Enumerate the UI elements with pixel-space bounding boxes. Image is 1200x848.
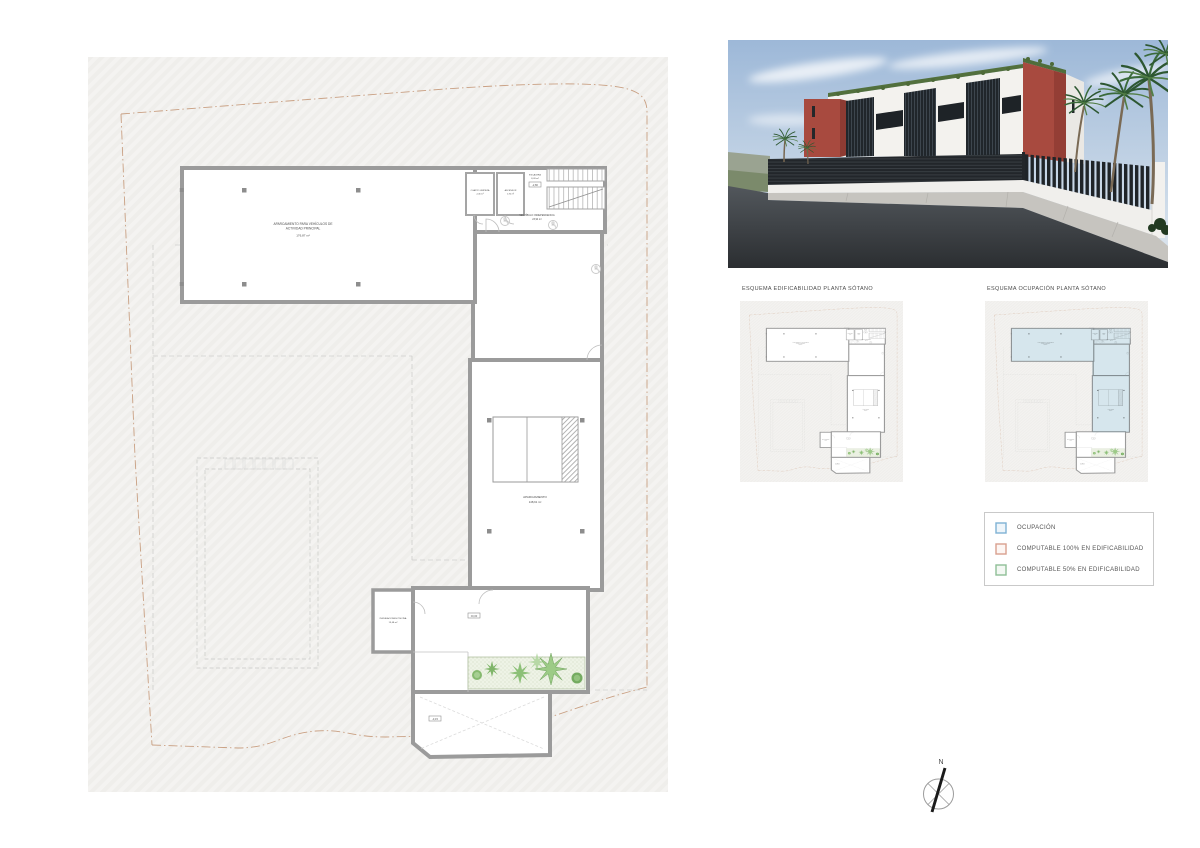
- legend-label: OCUPACIÓN: [1017, 525, 1056, 531]
- building-render-image: [728, 40, 1168, 268]
- north-label: N: [938, 759, 943, 766]
- legend-item-computable-100: COMPUTABLE 100% EN EDIFICABILIDAD: [995, 543, 1145, 555]
- legend-label: COMPUTABLE 50% EN EDIFICABILIDAD: [1017, 567, 1140, 573]
- legend-label: COMPUTABLE 100% EN EDIFICABILIDAD: [1017, 546, 1144, 552]
- schematic-ocupacion-plan: [985, 301, 1148, 482]
- legend-item-computable-50: COMPUTABLE 50% EN EDIFICABILIDAD: [995, 564, 1145, 576]
- legend-swatch-computable-100: [995, 543, 1007, 555]
- schematic-ocupacion-title: ESQUEMA OCUPACIÓN PLANTA SÓTANO: [987, 286, 1155, 292]
- legend-swatch-ocupacion: [995, 522, 1007, 534]
- schematic-edificabilidad-title: ESQUEMA EDIFICABILIDAD PLANTA SÓTANO: [742, 286, 910, 292]
- schematic-ocupacion: ESQUEMA OCUPACIÓN PLANTA SÓTANO: [985, 286, 1155, 482]
- legend-item-ocupacion: OCUPACIÓN: [995, 522, 1145, 534]
- main-floor-plan: [88, 57, 668, 792]
- schematic-edificabilidad-plan: [740, 301, 903, 482]
- schematic-edificabilidad: ESQUEMA EDIFICABILIDAD PLANTA SÓTANO: [740, 286, 910, 482]
- legend-swatch-computable-50: [995, 564, 1007, 576]
- compass-needle: [931, 768, 947, 813]
- architectural-sheet: -2,80 ±0,00 -3,15 APARCAMIENTO PARA VEHÍ…: [0, 0, 1200, 848]
- legend: OCUPACIÓN COMPUTABLE 100% EN EDIFICABILI…: [984, 512, 1154, 586]
- north-arrow-icon: N: [915, 752, 965, 818]
